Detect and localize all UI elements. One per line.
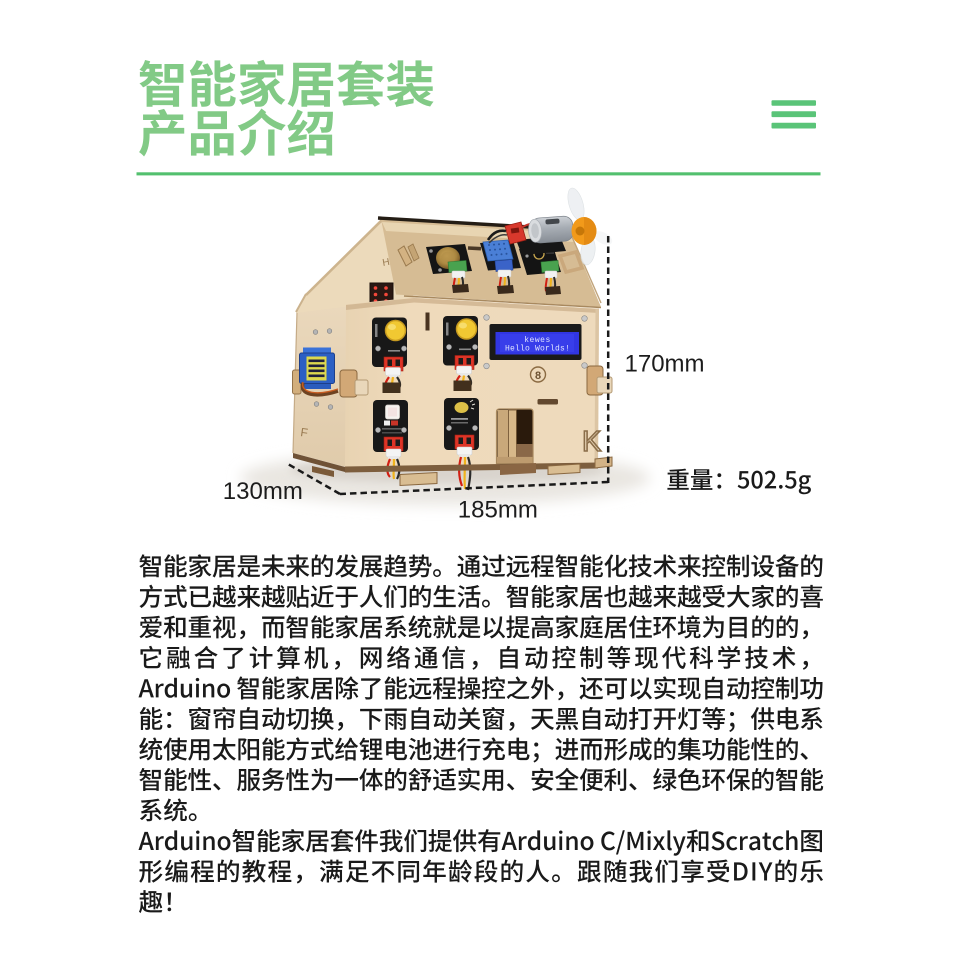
svg-text:130mm: 130mm [223,478,303,505]
svg-text:185mm: 185mm [458,496,538,523]
svg-text:170mm: 170mm [625,351,705,378]
svg-text:K: K [582,426,602,458]
svg-text:8: 8 [535,370,541,382]
svg-text:Hello Worlds!: Hello Worlds! [505,345,570,354]
